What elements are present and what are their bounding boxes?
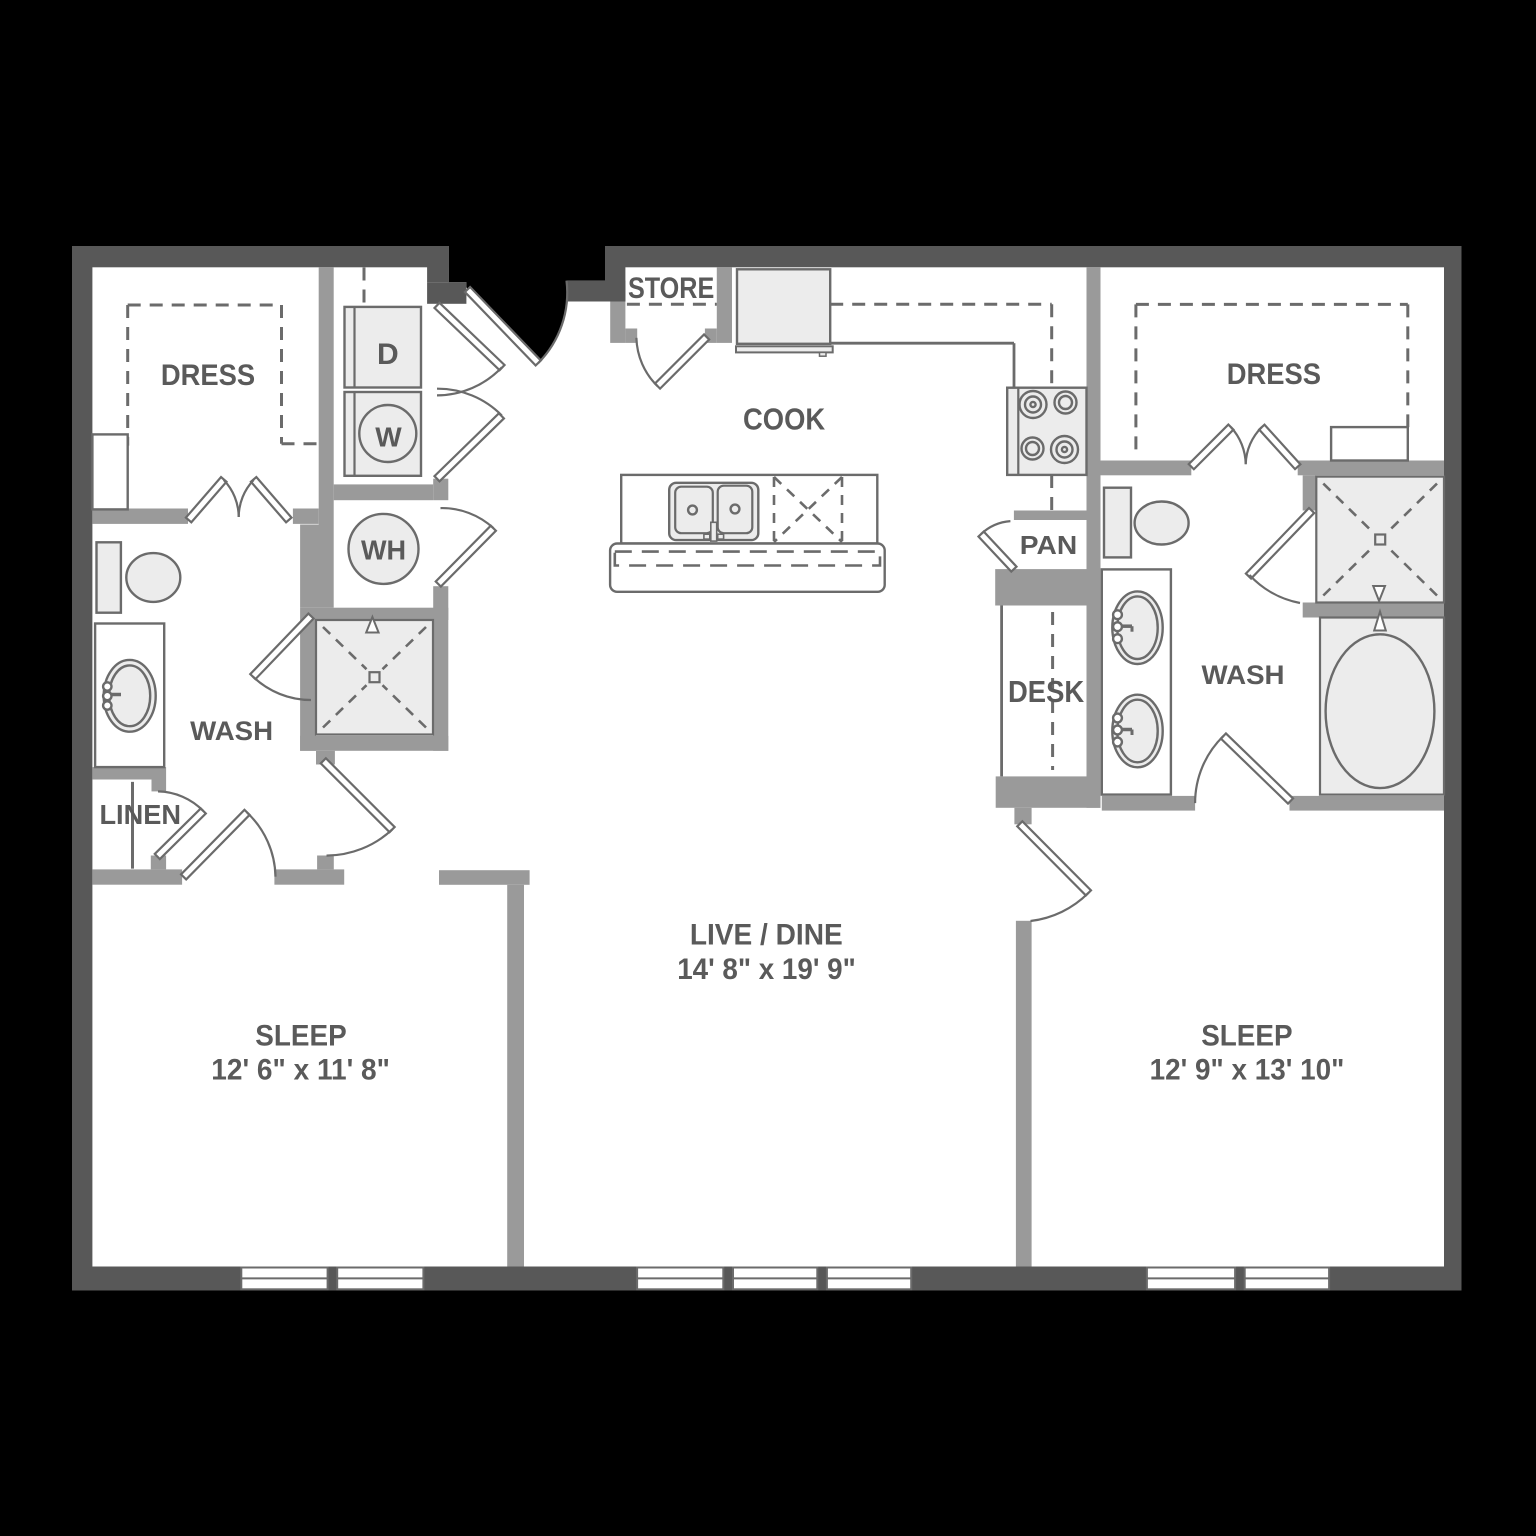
svg-text:12' 9" x 13' 10": 12' 9" x 13' 10" — [1150, 1053, 1345, 1086]
svg-text:DESK: DESK — [1008, 675, 1084, 709]
svg-text:SLEEP: SLEEP — [255, 1020, 346, 1053]
svg-text:WASH: WASH — [1202, 660, 1285, 690]
svg-text:12' 6" x 11' 8": 12' 6" x 11' 8" — [211, 1053, 390, 1086]
svg-text:SLEEP: SLEEP — [1201, 1020, 1292, 1053]
svg-text:D: D — [377, 338, 399, 371]
svg-text:LIVE / DINE: LIVE / DINE — [690, 918, 843, 951]
svg-text:STORE: STORE — [628, 272, 714, 305]
svg-text:PAN: PAN — [1020, 530, 1077, 560]
svg-text:WH: WH — [361, 535, 406, 566]
svg-text:14' 8" x 19' 9": 14' 8" x 19' 9" — [677, 953, 856, 986]
svg-text:COOK: COOK — [743, 401, 826, 436]
svg-text:W: W — [375, 422, 402, 453]
svg-text:DRESS: DRESS — [1227, 358, 1321, 391]
svg-text:DRESS: DRESS — [161, 359, 255, 392]
svg-text:LINEN: LINEN — [99, 799, 181, 830]
svg-text:WASH: WASH — [190, 716, 273, 746]
